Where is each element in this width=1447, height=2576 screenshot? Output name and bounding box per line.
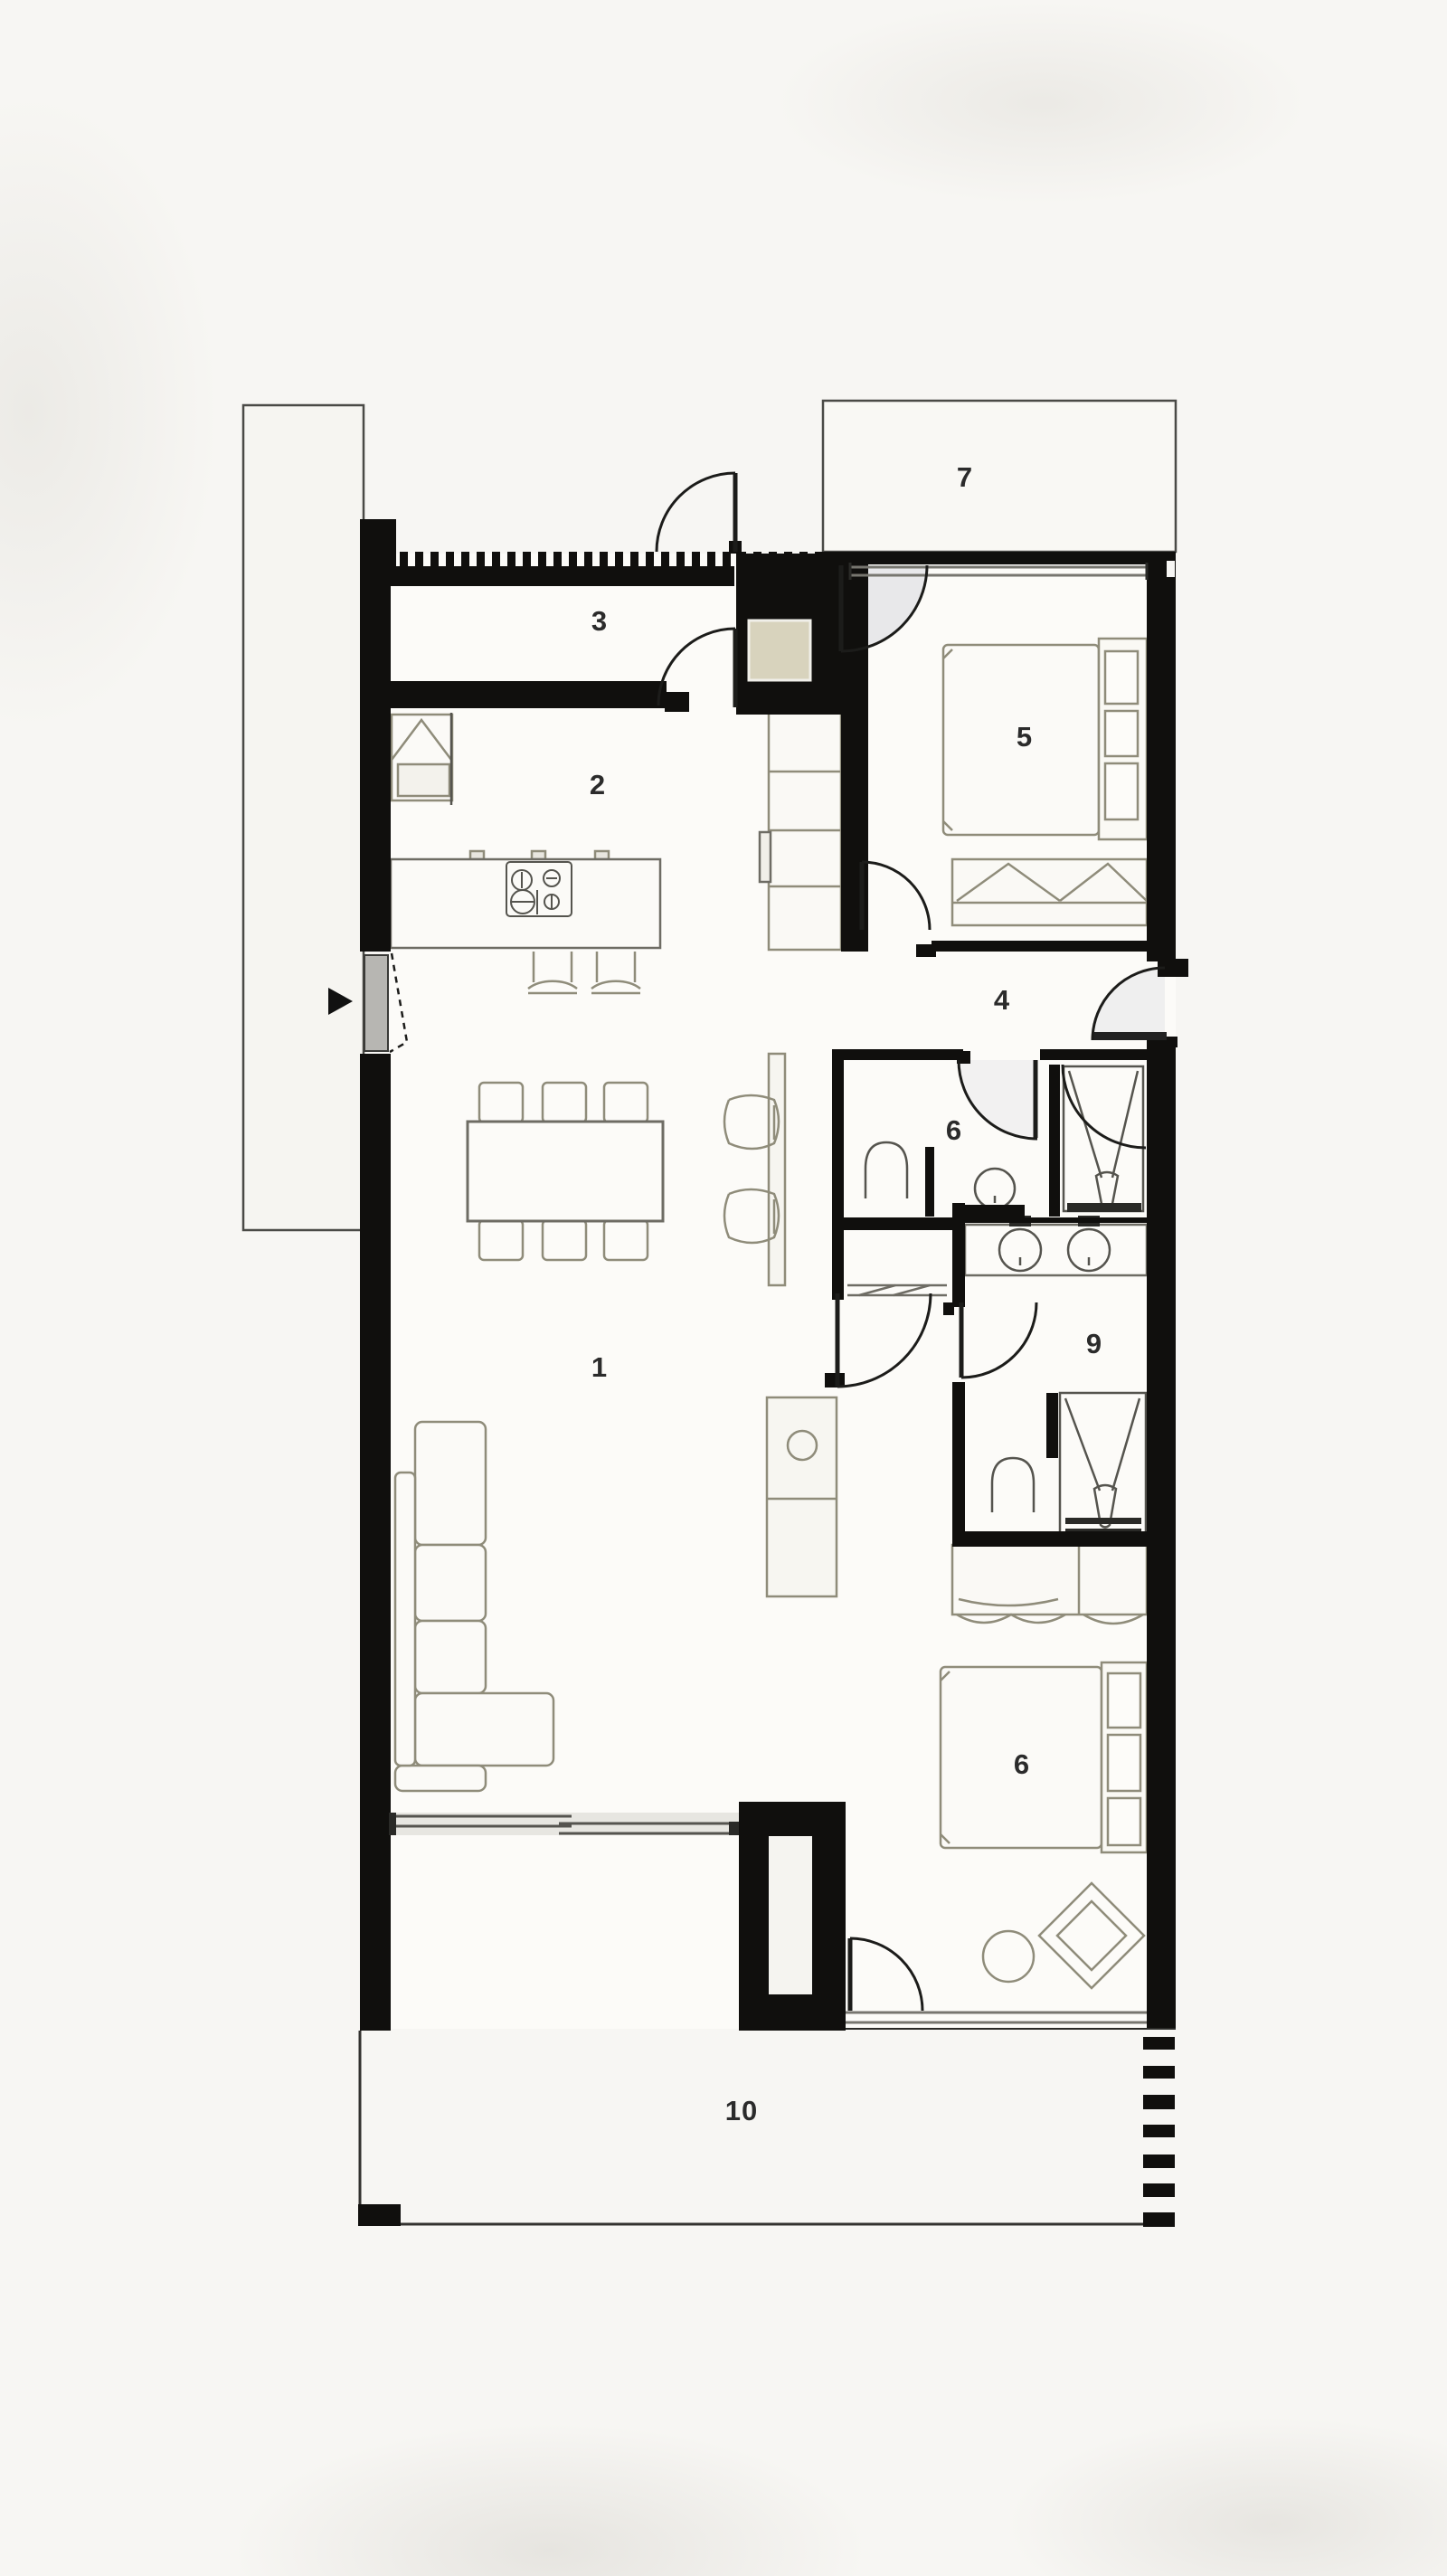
terrace-corner-block xyxy=(358,2204,401,2226)
wall-niche xyxy=(749,620,810,680)
floor-plan-page: { "meta": { "title": "Apartment floor pl… xyxy=(0,0,1447,2576)
terrace-north-area xyxy=(823,401,1176,552)
closet-north xyxy=(952,859,1147,925)
sliding-door-south xyxy=(389,1813,739,1835)
dining-table xyxy=(468,1122,663,1221)
kitchen-cabinets xyxy=(760,711,841,950)
driveway-area xyxy=(243,405,364,1230)
door-main-entry xyxy=(657,473,735,552)
room-label-terrace-south: 10 xyxy=(725,2095,758,2127)
room-label-kitchen: 2 xyxy=(590,769,606,801)
desk xyxy=(769,1054,785,1285)
room-label-entry: 3 xyxy=(591,605,608,638)
bed-south xyxy=(941,1662,1147,1852)
south-wall-slot xyxy=(769,1836,812,1994)
room-label-bedroom-south: 6 xyxy=(1014,1748,1030,1781)
dining-set xyxy=(468,1083,663,1260)
wardrobe-south xyxy=(952,1545,1147,1624)
room-label-terrace-north: 7 xyxy=(957,461,973,494)
east-wall-notch xyxy=(1167,561,1175,577)
room-label-ensuite: 9 xyxy=(1086,1328,1102,1360)
room-label-bedroom-north: 5 xyxy=(1017,721,1033,753)
room-label-bathroom: 6 xyxy=(946,1114,962,1147)
terrace-south-outline xyxy=(360,2031,1147,2224)
room-label-living: 1 xyxy=(591,1351,608,1384)
floor-plan-drawing xyxy=(0,0,1447,2576)
boundary-dashes xyxy=(1143,2037,1175,2227)
room-label-hallway: 4 xyxy=(994,984,1010,1017)
bed-north xyxy=(943,639,1147,839)
sideboard xyxy=(767,1397,837,1596)
